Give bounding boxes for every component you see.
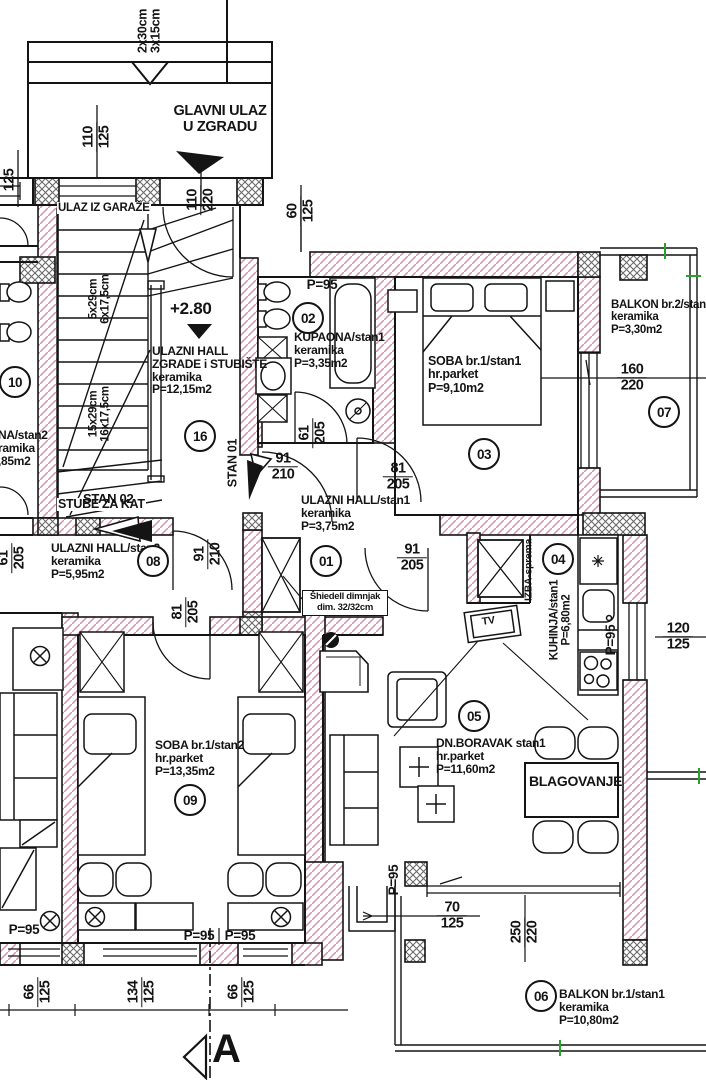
dim-160-220: 160220	[617, 362, 647, 393]
level-marker: +2.80	[170, 300, 212, 318]
dim-120-125: 120125	[663, 621, 693, 652]
dim-61-205: 61205	[0, 543, 28, 573]
desk-icon	[136, 903, 193, 930]
sill-label: P=95	[387, 865, 401, 896]
dim-70-125: 70125	[437, 900, 467, 931]
floor-plan: 2x30cm3x15cm GLAVNI ULAZU ZGRADU ULAZ IZ…	[0, 0, 706, 1080]
stairs-lower-flight-label: 15x29cm16x17,5cm	[88, 386, 113, 442]
sill-label: P=95	[604, 625, 618, 656]
room-number-09: 09	[174, 784, 206, 816]
dim-134-125: 134125	[126, 977, 157, 1007]
sofa-icon	[0, 693, 57, 820]
room-label-balkon1: BALKON br.1/stan1keramikaP=10,80m2	[559, 988, 665, 1026]
room-number-04: 04	[542, 543, 574, 575]
room-label-izba: IZBA-sprema	[523, 539, 534, 601]
chair-icon	[228, 863, 263, 896]
dim-61-205: 61205	[297, 418, 328, 448]
chair-icon	[116, 863, 151, 896]
room-label-kuhinja: KUHINJA/stan1P=6,80m2	[549, 580, 574, 660]
chair-icon	[78, 863, 113, 896]
room-number-10: 10	[0, 366, 31, 398]
stan1-label: STAN 01	[226, 439, 239, 487]
sofa-icon	[330, 735, 378, 845]
sill-label: P=95	[225, 929, 256, 943]
dim-91-210: 91210	[192, 539, 223, 569]
stairs-upper-flight-label: 5x29cm6x17,5cm	[88, 274, 113, 323]
room-label-hall-stan1: ULAZNI HALL/stan1keramikaP=3,75m2	[301, 494, 410, 532]
room-label-neighbor: NA/stan2ramika,85m2	[0, 429, 48, 467]
room-number-06: 06	[525, 980, 557, 1012]
room-number-08: 08	[137, 545, 169, 577]
dining-label: BLAGOVANJE	[529, 774, 622, 789]
dim-60-125: 60125	[285, 196, 316, 226]
garage-entrance-label: ULAZ IZ GARAŽE	[57, 202, 151, 214]
entrance-steps-note: 2x30cm3x15cm	[137, 9, 164, 53]
tv-label: TV	[481, 615, 495, 628]
room-label-kupaona: KUPAONA/stan1keramikaP=3,35m2	[294, 331, 385, 369]
dim-250-220: 250220	[509, 917, 540, 947]
chair-icon	[533, 821, 573, 853]
room-label-soba1-stan1: SOBA br.1/stan1hr.parketP=9,10m2	[428, 355, 521, 395]
stan2-label: STAN 02	[83, 492, 133, 506]
room-label-soba1-stan2: SOBA br.1/stan2hr.parketP=13,35m2	[155, 739, 244, 777]
section-arrow-icon	[184, 1036, 206, 1078]
entrance-arrow-icon	[176, 151, 224, 174]
dim-91-205: 91205	[397, 542, 427, 573]
dim-110-220: 110220	[185, 185, 216, 215]
dim-66-125: 66125	[22, 977, 53, 1007]
fireplace	[320, 632, 368, 692]
section-marker-label: A	[212, 1028, 241, 1071]
stan1-door-icon	[247, 460, 263, 500]
bedroom1-furniture	[388, 278, 574, 425]
room-number-16: 16	[184, 420, 216, 452]
nightstand-icon	[546, 281, 574, 311]
room-number-02: 02	[292, 302, 324, 334]
dim-81-205: 81205	[170, 597, 201, 627]
room-label-boravak: DN.BORAVAK stan1hr.parketP=11,60m2	[436, 737, 545, 775]
dim-125: 125	[2, 165, 17, 195]
chimney-label: Šhiedell dimnjakdim. 32/32cm	[302, 590, 388, 616]
chair-icon	[266, 863, 301, 896]
room-number-05: 05	[458, 700, 490, 732]
room-number-03: 03	[468, 438, 500, 470]
chair-icon	[578, 727, 618, 759]
dim-110-125: 110125	[81, 122, 112, 152]
sill-label: P=95	[9, 923, 40, 937]
sill-label: P=95	[184, 929, 215, 943]
kitchen-fixtures	[578, 535, 618, 695]
chair-icon	[578, 821, 618, 853]
floor-plan-drawing	[0, 0, 706, 1080]
dim-91-210: 91210	[268, 451, 298, 482]
desk-icon	[228, 903, 303, 930]
room-label-hall-building: ULAZNI HALLZGRADE i STUBIŠTE keramikaP=1…	[152, 345, 267, 396]
room-number-01: 01	[310, 545, 342, 577]
level-arrow-icon	[187, 324, 212, 339]
sill-label: P=95	[307, 278, 338, 292]
room-number-07: 07	[648, 396, 680, 428]
dim-81-205: 81205	[383, 461, 413, 492]
room-label-balkon2: BALKON br.2/stan1keramikaP=3,30m2	[611, 299, 706, 336]
main-entrance-label: GLAVNI ULAZU ZGRADU	[160, 104, 280, 135]
dim-66-125: 66125	[226, 977, 257, 1007]
